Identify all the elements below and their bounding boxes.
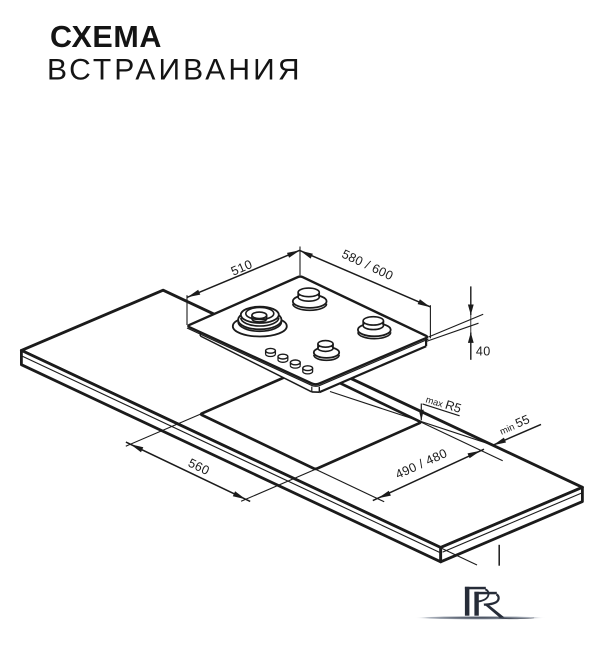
- svg-text:ВСТРАИВАНИЯ: ВСТРАИВАНИЯ: [47, 54, 303, 87]
- svg-text:СХЕМА: СХЕМА: [50, 20, 162, 54]
- svg-text:40: 40: [476, 345, 491, 359]
